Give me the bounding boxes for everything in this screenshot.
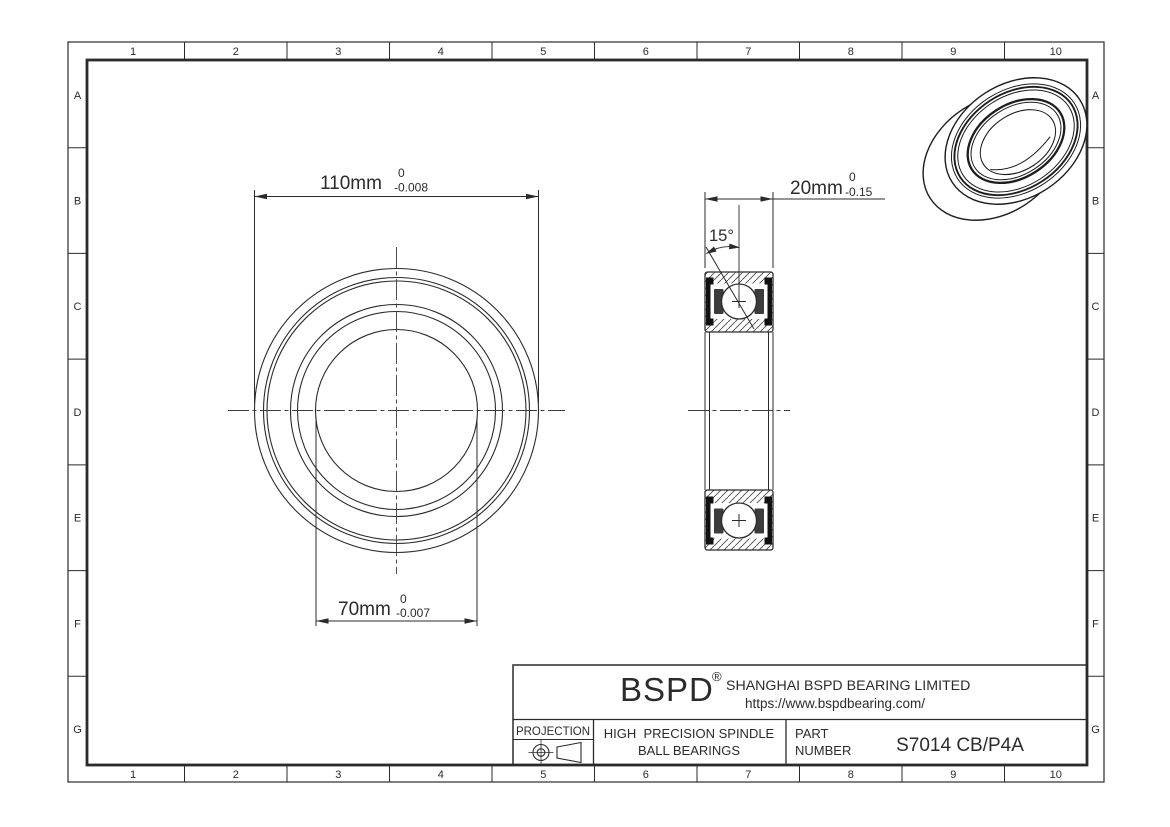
column-label: 9 — [950, 769, 956, 781]
registered-trademark-icon: ® — [712, 669, 722, 684]
bore-walls — [705, 332, 773, 490]
front-view — [228, 247, 565, 574]
row-label: C — [1092, 301, 1100, 313]
width-dim-tol-upper: 0 — [849, 170, 856, 184]
column-label: 4 — [438, 46, 444, 58]
frame-column-labels-top: 1 2 3 4 5 6 7 8 9 10 — [130, 46, 1062, 58]
bspd-logo: BSPD — [620, 671, 714, 708]
od-dim-value: 110mm — [320, 173, 382, 194]
column-label: 1 — [130, 769, 136, 781]
od-dim-tol-lower: -0.008 — [394, 181, 428, 195]
column-label: 7 — [745, 46, 751, 58]
row-label: F — [1092, 618, 1099, 630]
row-label: A — [1092, 90, 1100, 102]
column-label: 10 — [1050, 46, 1062, 58]
front-view-center-lines — [228, 247, 565, 574]
column-label: 2 — [233, 769, 239, 781]
row-label: D — [1092, 407, 1100, 419]
column-label: 5 — [540, 46, 546, 58]
drawing-canvas: 1 2 3 4 5 6 7 8 9 10 1 2 3 4 5 6 7 8 9 1… — [0, 0, 1170, 827]
column-label: 10 — [1050, 769, 1062, 781]
row-label: B — [74, 196, 81, 208]
od-dim-tol-upper: 0 — [398, 166, 405, 180]
column-label: 3 — [335, 46, 341, 58]
arrowhead-icon — [705, 196, 718, 201]
column-label: 7 — [745, 769, 751, 781]
row-label: A — [74, 90, 82, 102]
column-label: 4 — [438, 769, 444, 781]
frame-row-labels-left: A B C D E F G — [73, 90, 82, 736]
bore-dim-tol-upper: 0 — [400, 592, 407, 606]
section-bottom-block — [705, 490, 773, 550]
row-label: G — [1091, 724, 1100, 736]
column-label: 6 — [643, 769, 649, 781]
bore-dim-tol-lower: -0.007 — [396, 606, 430, 620]
arrowhead-icon — [761, 196, 774, 201]
row-label: C — [74, 301, 82, 313]
frame-column-dividers — [185, 42, 1005, 782]
website-url: https://www.bspdbearing.com/ — [745, 696, 925, 711]
bearing-3d-face-outer — [921, 52, 1111, 230]
arrowhead-icon — [526, 194, 539, 199]
frame-column-labels-bottom: 1 2 3 4 5 6 7 8 9 10 — [130, 769, 1062, 781]
column-label: 6 — [643, 46, 649, 58]
bore-dim-value: 70mm — [338, 599, 391, 620]
projection-label: PROJECTION — [516, 726, 590, 738]
row-label: B — [1092, 196, 1099, 208]
engineering-drawing-sheet: 1 2 3 4 5 6 7 8 9 10 1 2 3 4 5 6 7 8 9 1… — [0, 0, 1170, 827]
width-dimension: 20mm 0 -0.15 — [705, 170, 885, 268]
contact-angle-value: 15° — [709, 227, 734, 245]
product-title-line2: BALL BEARINGS — [638, 743, 740, 758]
column-label: 5 — [540, 769, 546, 781]
arrowhead-icon — [316, 618, 329, 623]
frame-inner-border — [87, 60, 1087, 765]
column-label: 1 — [130, 46, 136, 58]
part-number-label-line1: PART — [795, 726, 829, 741]
bearing-3d-view — [899, 52, 1111, 246]
part-number: S7014 CB/P4A — [896, 735, 1024, 756]
product-title-line1: HIGH PRECISION SPINDLE — [604, 726, 775, 741]
row-label: G — [73, 724, 82, 736]
arrowhead-icon — [255, 194, 268, 199]
row-label: F — [74, 618, 81, 630]
arrowhead-icon — [706, 247, 717, 255]
column-label: 9 — [950, 46, 956, 58]
column-label: 2 — [233, 46, 239, 58]
row-label: E — [74, 513, 81, 525]
row-label: D — [74, 407, 82, 419]
title-block: BSPD ® SHANGHAI BSPD BEARING LIMITED htt… — [513, 665, 1087, 765]
side-view — [688, 272, 790, 550]
column-label: 8 — [848, 769, 854, 781]
width-dim-value: 20mm — [790, 178, 843, 199]
company-name: SHANGHAI BSPD BEARING LIMITED — [726, 678, 970, 694]
frame-row-labels-right: A B C D E F G — [1091, 90, 1100, 736]
width-dim-tol-lower: -0.15 — [845, 185, 873, 199]
frame-row-dividers — [68, 148, 1104, 677]
first-angle-projection-icon — [529, 740, 582, 765]
arrowhead-icon — [465, 618, 478, 623]
row-label: E — [1092, 513, 1099, 525]
part-number-label-line2: NUMBER — [795, 743, 851, 758]
column-label: 3 — [335, 769, 341, 781]
column-label: 8 — [848, 46, 854, 58]
